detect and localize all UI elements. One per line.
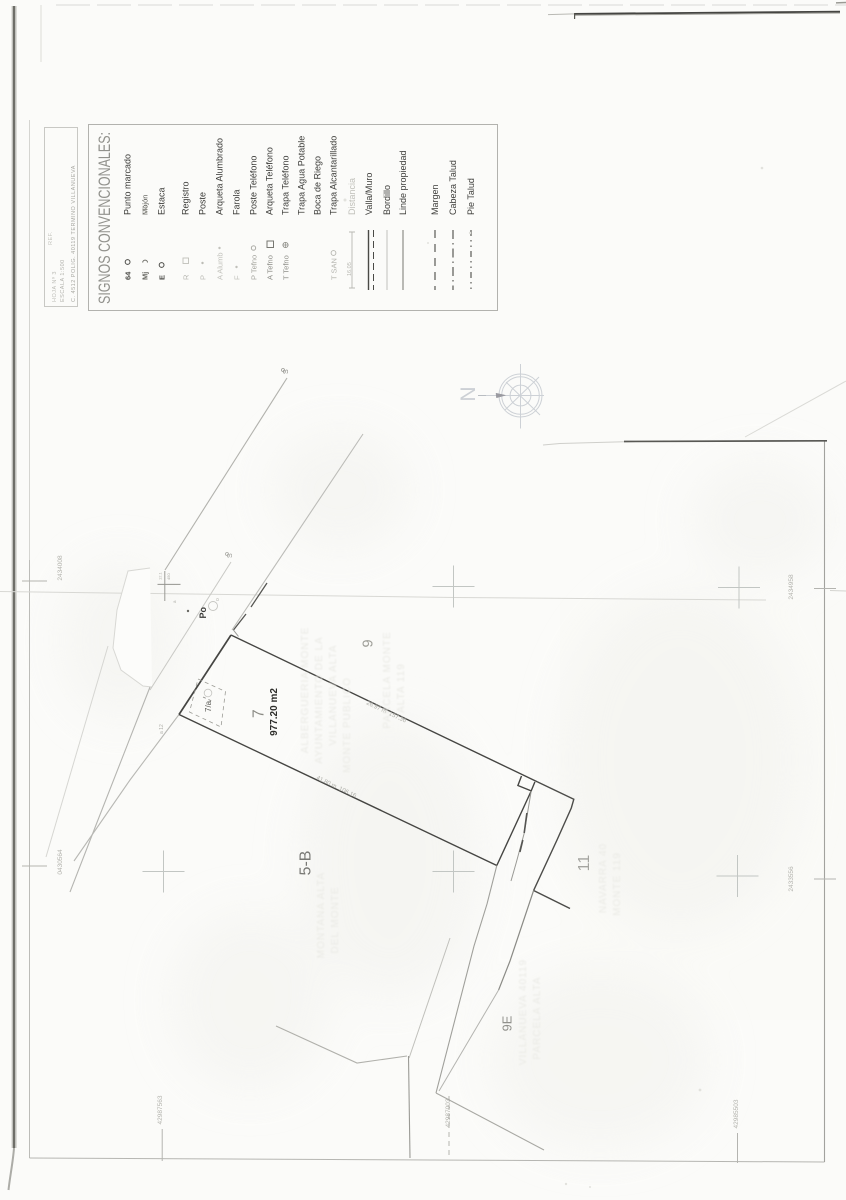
svg-text:ALTA 119: ALTA 119 — [396, 663, 407, 713]
svg-text:42987003: 42987003 — [445, 1098, 452, 1127]
svg-text:42985503: 42985503 — [733, 1099, 740, 1128]
svg-text:7/a: 7/a — [204, 700, 213, 712]
svg-text:MONTE 119: MONTE 119 — [612, 852, 623, 916]
svg-text:Boca de Riego: Boca de Riego — [313, 156, 323, 215]
svg-text:64: 64 — [124, 271, 133, 280]
svg-text:Trapa Alcantarillado: Trapa Alcantarillado — [329, 136, 339, 215]
svg-text:977.20 m2: 977.20 m2 — [269, 688, 280, 736]
svg-text:AYUNTAMIENTO DE LA: AYUNTAMIENTO DE LA — [314, 636, 325, 763]
svg-text:42987563: 42987563 — [157, 1095, 164, 1124]
svg-text:ESCALA 1:500: ESCALA 1:500 — [60, 259, 66, 302]
svg-text:NAVARRA 40: NAVARRA 40 — [598, 843, 609, 913]
svg-text:Distancia: Distancia — [347, 178, 357, 215]
svg-text:Mojón: Mojón — [141, 195, 150, 215]
svg-text:Cabeza Talud: Cabeza Talud — [448, 160, 458, 215]
svg-text:9E: 9E — [500, 1016, 515, 1032]
svg-text:A Tefno: A Tefno — [266, 255, 275, 280]
svg-text:Registro: Registro — [181, 181, 191, 215]
svg-text:2433556: 2433556 — [788, 866, 795, 892]
svg-text:11: 11 — [576, 855, 593, 872]
svg-text:2434008: 2434008 — [57, 555, 64, 581]
svg-text:Poste: Poste — [198, 192, 208, 215]
svg-text:PARCELA ALTA: PARCELA ALTA — [532, 976, 543, 1059]
svg-text:REF.: REF. — [48, 231, 54, 245]
svg-text:450: 450 — [166, 573, 171, 580]
svg-text:T SAN: T SAN — [330, 258, 339, 280]
svg-text:7: 7 — [251, 709, 268, 718]
svg-text:a 12: a 12 — [159, 724, 165, 734]
svg-text:MONTE PUBLICO: MONTE PUBLICO — [342, 677, 353, 773]
svg-text:ALBERGUERIA MONTE: ALBERGUERIA MONTE — [300, 627, 311, 753]
svg-text:A Alumb: A Alumb — [216, 252, 225, 280]
svg-text:T Tefno: T Tefno — [282, 255, 291, 280]
svg-text:MONTANA ALTA: MONTANA ALTA — [316, 872, 327, 958]
svg-text:P Tefno: P Tefno — [250, 255, 259, 280]
svg-text:Arqueta Alumbrado: Arqueta Alumbrado — [215, 138, 225, 215]
svg-text:VILLANUEVA ALTA: VILLANUEVA ALTA — [328, 644, 339, 745]
svg-text:VILLANUEVA 40119: VILLANUEVA 40119 — [518, 959, 529, 1065]
svg-text:Valla/Muro: Valla/Muro — [364, 173, 374, 215]
svg-text:16.05: 16.05 — [347, 262, 353, 276]
svg-text:Farola: Farola — [232, 189, 242, 215]
svg-text:Pie Talud: Pie Talud — [466, 178, 476, 215]
svg-text:Margen: Margen — [430, 184, 440, 215]
svg-text:12.1: 12.1 — [158, 571, 163, 580]
svg-text:Punto marcado: Punto marcado — [123, 154, 133, 215]
svg-text:9: 9 — [361, 639, 377, 647]
svg-text:Po: Po — [198, 606, 208, 618]
svg-text:HOJA Nº 3: HOJA Nº 3 — [51, 271, 58, 302]
svg-text:Trapa Teléfono: Trapa Teléfono — [281, 155, 291, 215]
svg-text:Estaca: Estaca — [157, 187, 167, 215]
svg-text:R: R — [182, 274, 191, 280]
svg-text:SIGNOS CONVENCIONALES:: SIGNOS CONVENCIONALES: — [95, 132, 114, 304]
svg-text:DEL MONTE: DEL MONTE — [330, 887, 341, 954]
svg-text:0430564: 0430564 — [57, 849, 64, 875]
svg-text:PARCELA MONTE: PARCELA MONTE — [382, 631, 393, 728]
svg-text:Linde propiedad: Linde propiedad — [398, 150, 408, 215]
svg-text:Bordillo: Bordillo — [382, 185, 392, 215]
svg-text:Arqueta Teléfono: Arqueta Teléfono — [265, 147, 275, 215]
svg-text:2434958: 2434958 — [788, 574, 795, 600]
svg-text:P: P — [199, 275, 208, 280]
svg-text:Poste Teléfono: Poste Teléfono — [249, 156, 259, 215]
svg-text:C. 4512 POLIG. 40119 TERMINO: C. 4512 POLIG. 40119 TERMINO VILLANUEVA — [71, 165, 77, 302]
svg-text:Trapa Agua Potable: Trapa Agua Potable — [297, 136, 307, 215]
svg-text:E: E — [158, 275, 167, 280]
svg-text:5-B: 5-B — [298, 851, 315, 876]
svg-text:F: F — [233, 275, 242, 280]
svg-text:Mj: Mj — [141, 272, 150, 280]
svg-text:o: o — [215, 598, 221, 601]
svg-text:N: N — [457, 386, 480, 401]
